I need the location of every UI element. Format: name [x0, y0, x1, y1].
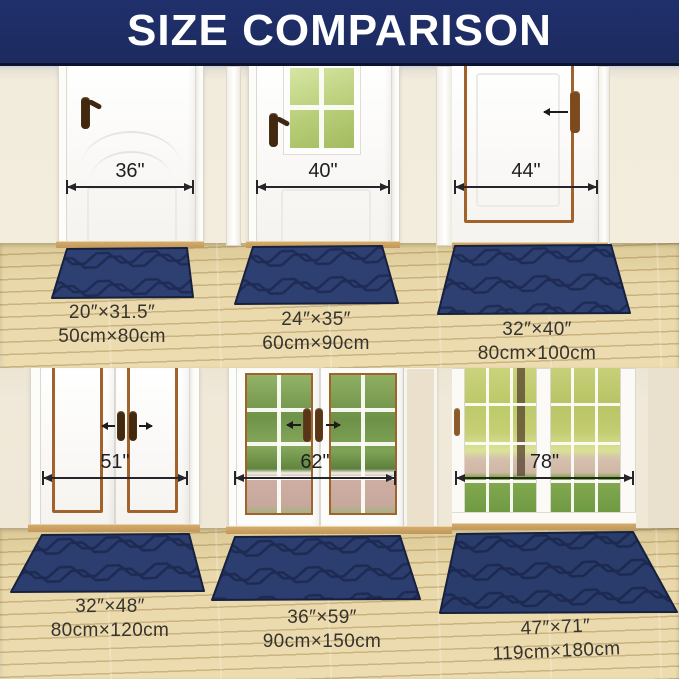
width-measure-44: 44": [454, 150, 598, 198]
mat-size-label-1: 20″×31.5″ 50cm×80cm: [32, 301, 192, 349]
mat-size-label-4: 32″×48″ 80cm×120cm: [30, 595, 190, 643]
door-handle: [315, 408, 323, 442]
width-measure-62: 62": [234, 441, 396, 489]
mat-size-label-3: 32″×40″ 80cm×100cm: [457, 318, 617, 366]
window-muntin: [486, 368, 489, 512]
doormat-shape: [438, 245, 630, 314]
window-muntin: [571, 368, 574, 512]
sidelight-panel: [226, 66, 241, 246]
door-width-label: 40": [256, 160, 390, 183]
door-handle: [303, 408, 311, 442]
arrowhead-right-icon: [380, 183, 389, 191]
mat-size-cm: 80cm×100cm: [457, 342, 617, 366]
header-banner: SIZE COMPARISON: [0, 0, 679, 63]
width-measure-40: 40": [256, 150, 390, 198]
measure-line: [454, 186, 598, 188]
mat-size-label-6: 47″×71″ 119cm×180cm: [473, 612, 639, 667]
handle-pointer-arrow: [102, 425, 115, 427]
door-width-label: 36": [66, 160, 194, 183]
measure-line: [66, 186, 194, 188]
doormat-shape: [440, 532, 677, 613]
door-handle: [570, 91, 580, 133]
arrowhead-left-icon: [43, 474, 52, 482]
handle-pointer-arrow: [287, 424, 301, 426]
door-threshold: [226, 526, 452, 534]
arrowhead-left-icon: [235, 474, 244, 482]
arrowhead-right-icon: [588, 183, 597, 191]
mat-size-inches: 32″×40″: [457, 318, 617, 342]
handle-pointer-arrow: [139, 425, 152, 427]
handle-pointer-arrow: [544, 111, 568, 113]
mat-size-label-2: 24″×35″ 60cm×90cm: [236, 308, 396, 356]
door-threshold: [452, 523, 636, 530]
window-muntin: [463, 403, 536, 406]
doormat-47x71: [438, 531, 679, 615]
measure-line: [455, 477, 634, 479]
mat-size-inches: 32″×48″: [30, 595, 190, 619]
mat-size-cm: 60cm×90cm: [236, 332, 396, 356]
door-width-label: 78": [455, 451, 634, 474]
window-muntin: [290, 105, 354, 110]
door-handle: [454, 408, 460, 436]
width-measure-36: 36": [66, 150, 194, 198]
patio-door-glass-garden-view: [549, 368, 620, 512]
doormat-36x59: [210, 535, 424, 602]
arrowhead-left-icon: [67, 183, 76, 191]
mat-size-inches: 24″×35″: [236, 308, 396, 332]
mat-size-cm: 90cm×150cm: [240, 630, 404, 654]
mat-size-cm: 50cm×80cm: [32, 325, 192, 349]
sidelight-panel: [436, 66, 452, 246]
doormat-32x40: [437, 244, 632, 316]
mat-size-inches: 36″×59″: [240, 606, 404, 630]
page-title: SIZE COMPARISON: [0, 0, 679, 62]
doormat-shape: [235, 246, 398, 304]
window-muntin: [510, 368, 513, 512]
window-muntin: [595, 368, 598, 512]
doormat-shape: [52, 248, 193, 298]
measure-line: [256, 186, 390, 188]
door-handle: [117, 411, 125, 441]
window-frame: [283, 66, 361, 155]
measure-line: [234, 477, 396, 479]
mat-size-cm: 80cm×120cm: [30, 619, 190, 643]
door-handle: [129, 411, 137, 441]
handle-pointer-arrow: [326, 424, 340, 426]
door-width-label: 62": [234, 451, 396, 474]
wall-corner-shade: [648, 368, 679, 528]
sidelight-shade-panel: [404, 368, 437, 530]
door-width-label: 51": [42, 451, 188, 474]
doormat-shape: [11, 534, 204, 592]
arrowhead-left-icon: [257, 183, 266, 191]
doormat-shape: [212, 536, 420, 600]
arrowhead-left-icon: [456, 474, 465, 482]
door-jamb: [598, 66, 610, 246]
doormat-24x35: [233, 245, 401, 306]
width-measure-78: 78": [455, 441, 634, 489]
window-muntin: [549, 403, 620, 406]
mat-size-inches: 20″×31.5″: [32, 301, 192, 325]
doormat-20x31: [48, 247, 196, 299]
measure-line: [42, 477, 188, 479]
door-width-label: 44": [454, 160, 598, 183]
door-threshold: [28, 524, 200, 532]
width-measure-51: 51": [42, 441, 188, 489]
arrowhead-right-icon: [184, 183, 193, 191]
patio-door-glass-garden-view: [463, 368, 536, 512]
doormat-32x48: [10, 533, 206, 594]
size-comparison-infographic: SIZE COMPARISON: [0, 0, 679, 679]
window-muntin: [331, 408, 395, 412]
mat-size-label-5: 36″×59″ 90cm×150cm: [240, 606, 404, 654]
arrowhead-left-icon: [455, 183, 464, 191]
arrowhead-right-icon: [178, 474, 187, 482]
arrowhead-right-icon: [624, 474, 633, 482]
arrowhead-right-icon: [386, 474, 395, 482]
window-muntin: [247, 408, 311, 412]
